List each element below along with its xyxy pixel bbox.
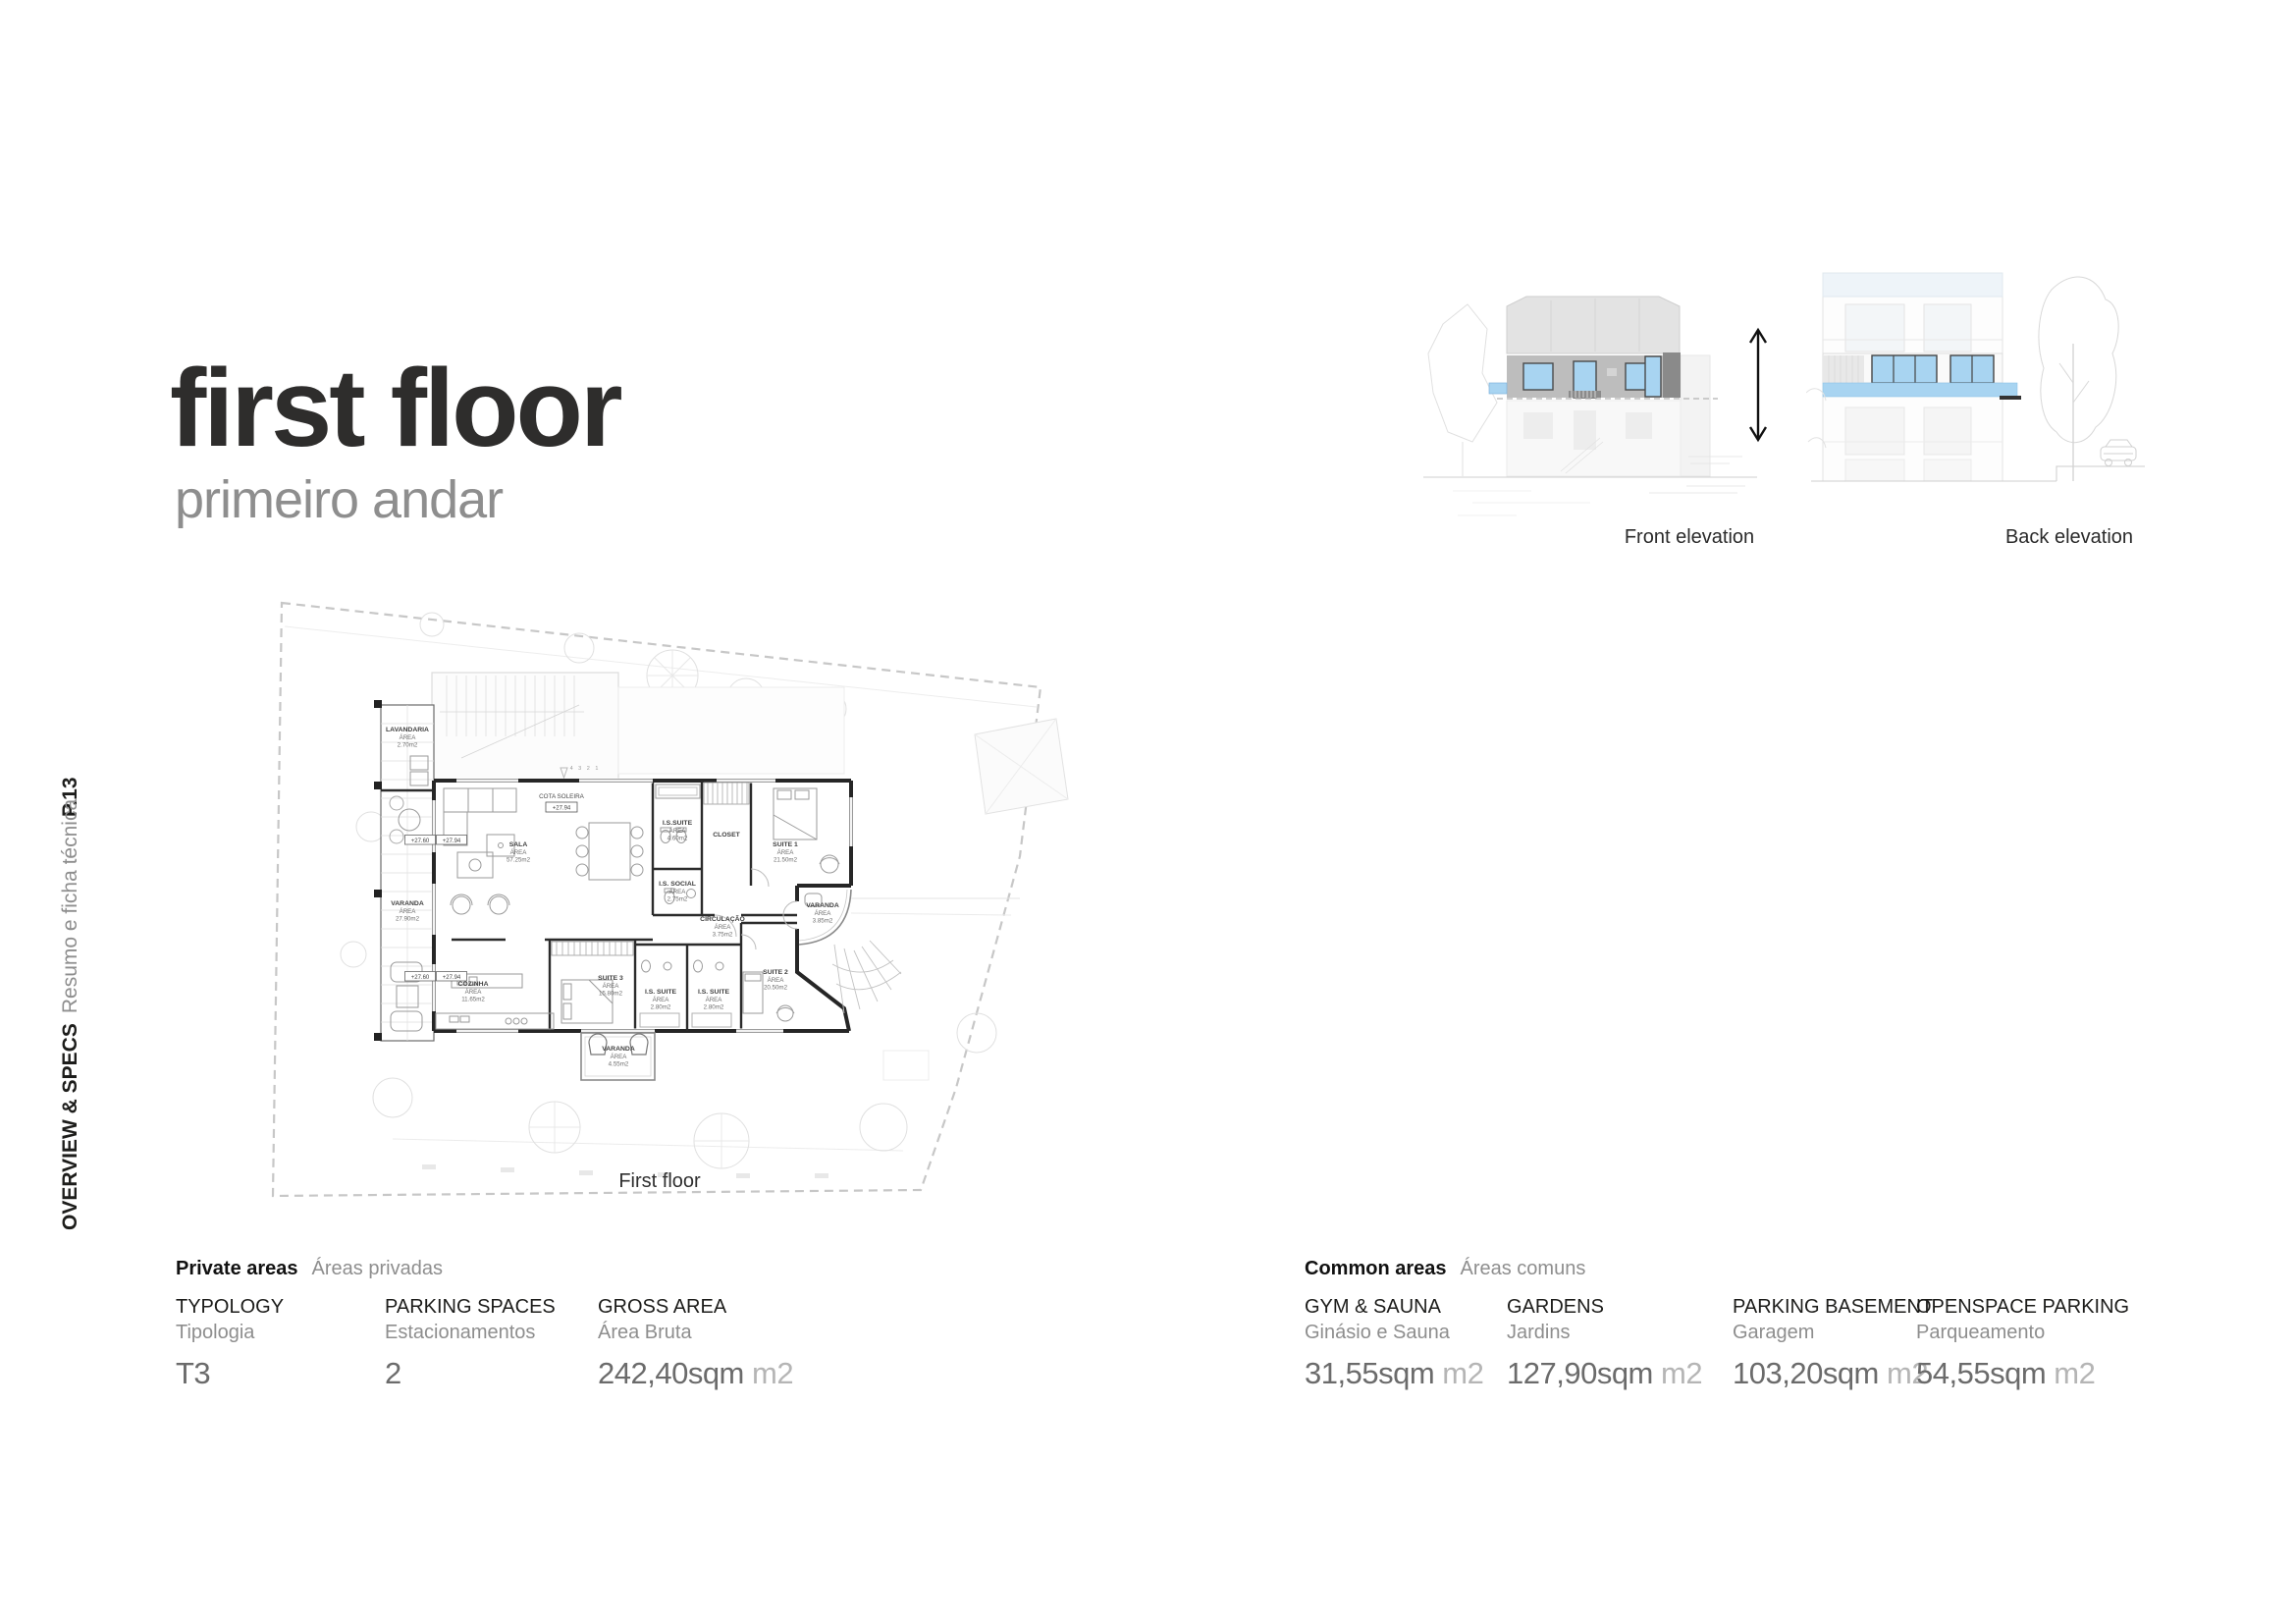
spec-value: 242,40sqm m2: [598, 1356, 824, 1391]
front-building: [1423, 297, 1757, 515]
front-tree-icon: [1428, 304, 1497, 476]
sidebar-section-pt: Resumo e ficha técnica: [59, 799, 81, 1013]
spec-label-pt: Área Bruta: [598, 1322, 824, 1344]
svg-text:+27.94: +27.94: [553, 806, 571, 812]
spec-value: 127,90sqm m2: [1507, 1356, 1733, 1391]
room-label-8: VARANDAÁREA3.85m2: [806, 902, 839, 925]
car-icon: [2101, 440, 2136, 466]
level-marker-text-0: +27.60: [411, 839, 430, 844]
private-areas-heading: Private areasÁreas privadas: [176, 1258, 1059, 1280]
spec-label-pt: Ginásio e Sauna: [1305, 1322, 1530, 1344]
spec-label-pt: Jardins: [1507, 1322, 1733, 1344]
height-arrow-icon: [1746, 326, 1770, 444]
spec-item-common-1: GARDENSJardins127,90sqm m2: [1507, 1296, 1733, 1391]
room-label-4: CLOSET: [713, 832, 740, 839]
spec-value: 31,55sqm m2: [1305, 1356, 1530, 1391]
entry-step-numbers: 4 3 2 1: [570, 766, 601, 772]
level-marker-text-1: +27.94: [443, 839, 461, 844]
sidebar-section-title: OVERVIEW & SPECSResumo e ficha técnica: [59, 799, 82, 1230]
back-elevation-drawing: [1806, 245, 2199, 540]
spec-label-en: GROSS AREA: [598, 1296, 824, 1319]
private-areas-heading-en: Private areas: [176, 1258, 298, 1279]
level-marker-text-3: +27.94: [443, 975, 461, 981]
back-building: [1811, 273, 2145, 481]
spec-label-en: PARKING SPACES: [385, 1296, 611, 1319]
unit-walls: [433, 780, 853, 1033]
private-areas-section: Private areasÁreas privadas TYPOLOGYTipo…: [176, 1258, 1059, 1415]
spec-label-en: TYPOLOGY: [176, 1296, 401, 1319]
common-areas-heading-en: Common areas: [1305, 1258, 1447, 1279]
spec-label-en: GYM & SAUNA: [1305, 1296, 1530, 1319]
svg-text:COTA SOLEIRA: COTA SOLEIRA: [539, 793, 585, 800]
spec-value: 2: [385, 1356, 611, 1391]
back-elevation-label: Back elevation: [1961, 526, 2177, 549]
private-areas-heading-pt: Áreas privadas: [312, 1258, 443, 1279]
sidebar-section-en: OVERVIEW & SPECS: [59, 1023, 81, 1230]
room-label-14: VARANDAÁREA4.55m2: [602, 1046, 635, 1068]
floor-plan: 4 3 2 1: [255, 589, 1158, 1257]
spec-label-en: OPENSPACE PARKING: [1916, 1296, 2142, 1319]
spec-label-pt: Tipologia: [176, 1322, 401, 1344]
spec-item-private-0: TYPOLOGYTipologiaT3: [176, 1296, 401, 1391]
spec-item-common-0: GYM & SAUNAGinásio e Sauna31,55sqm m2: [1305, 1296, 1530, 1391]
floor-plan-drawing: 4 3 2 1: [255, 589, 1158, 1257]
front-elevation-label: Front elevation: [1581, 526, 1797, 549]
front-elevation-drawing: [1414, 245, 1767, 540]
spec-item-private-1: PARKING SPACESEstacionamentos2: [385, 1296, 611, 1391]
spec-value: T3: [176, 1356, 401, 1391]
stairwell: 4 3 2 1: [432, 673, 844, 781]
spec-label-pt: Parqueamento: [1916, 1322, 2142, 1344]
common-areas-section: Common areasÁreas comuns GYM & SAUNAGiná…: [1305, 1258, 2188, 1415]
page-title: first floor: [170, 353, 620, 463]
spec-label-en: GARDENS: [1507, 1296, 1733, 1319]
common-areas-heading: Common areasÁreas comuns: [1305, 1258, 2188, 1280]
spec-value: 54,55sqm m2: [1916, 1356, 2142, 1391]
spec-item-private-2: GROSS AREAÁrea Bruta242,40sqm m2: [598, 1296, 824, 1391]
spec-label-pt: Estacionamentos: [385, 1322, 611, 1344]
plan-caption: First floor: [561, 1170, 758, 1193]
spec-item-common-3: OPENSPACE PARKINGParqueamento54,55sqm m2: [1916, 1296, 2142, 1391]
page-subtitle: primeiro andar: [175, 469, 503, 530]
left-balcony-strip: [374, 700, 434, 1041]
brochure-page: first floor primeiro andar P.13 OVERVIEW…: [0, 0, 2296, 1624]
common-areas-heading-pt: Áreas comuns: [1461, 1258, 1586, 1279]
level-marker-text-2: +27.60: [411, 975, 430, 981]
